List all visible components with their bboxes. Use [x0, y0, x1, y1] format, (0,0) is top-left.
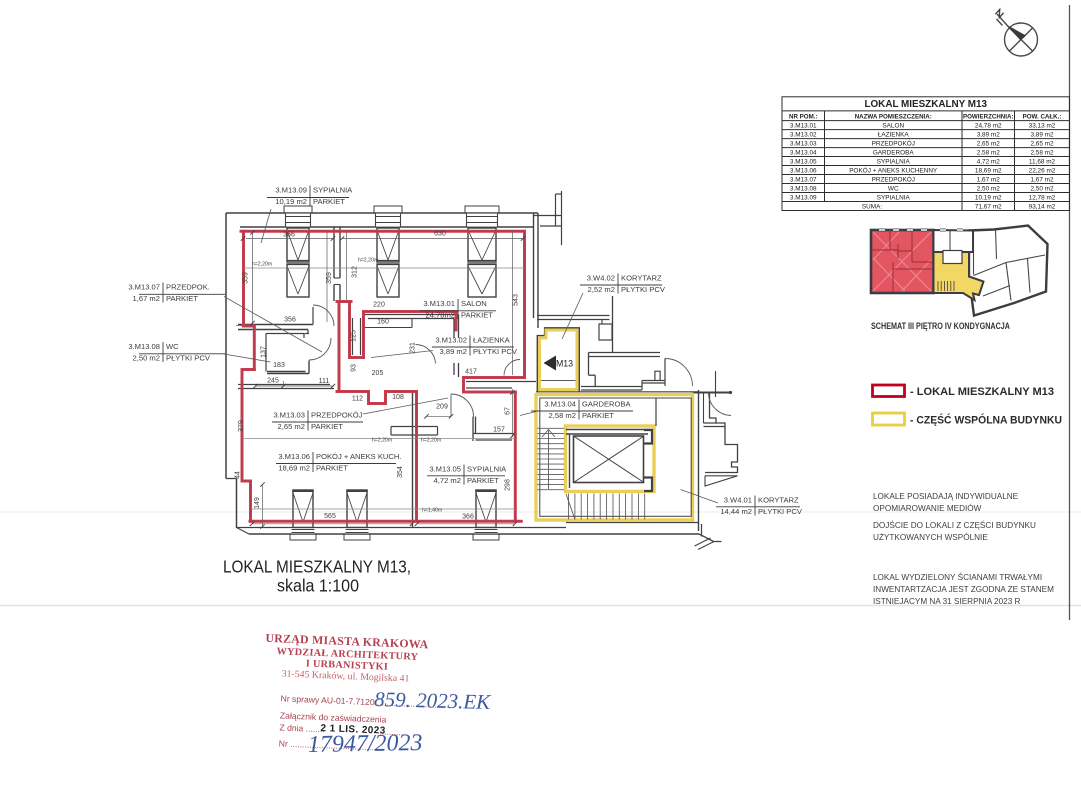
svg-text:630: 630	[434, 231, 446, 238]
svg-text:ŁAZIENKA: ŁAZIENKA	[473, 336, 511, 345]
svg-text:379: 379	[238, 420, 245, 432]
svg-text:KORYTARZ: KORYTARZ	[621, 274, 662, 283]
svg-text:h=2,20m: h=2,20m	[372, 438, 392, 444]
svg-text:67: 67	[505, 407, 512, 415]
svg-text:PŁYTKI PCV: PŁYTKI PCV	[166, 354, 211, 363]
svg-text:2,58 m2: 2,58 m2	[549, 411, 576, 420]
svg-text:359: 359	[243, 272, 250, 284]
svg-text:PŁYTKI PCV: PŁYTKI PCV	[473, 347, 518, 356]
svg-text:18,69 m2: 18,69 m2	[975, 168, 1002, 175]
svg-text:LOKALE POSIADAJĄ INDYWIDUALNE: LOKALE POSIADAJĄ INDYWIDUALNE	[873, 492, 1019, 501]
svg-text:1,67 m2: 1,67 m2	[1030, 177, 1054, 184]
svg-text:ISTNIEJACYM NA 31 SIERPNIA 202: ISTNIEJACYM NA 31 SIERPNIA 2023 R	[873, 597, 1021, 606]
svg-text:h=2,20m: h=2,20m	[252, 262, 272, 268]
svg-text:3.M13.03: 3.M13.03	[790, 141, 817, 148]
svg-text:h=2,20m: h=2,20m	[421, 438, 441, 444]
svg-text:NR POM.:: NR POM.:	[789, 113, 818, 120]
svg-text:PARKIET: PARKIET	[582, 411, 614, 420]
svg-text:3.M13.04: 3.M13.04	[790, 150, 817, 157]
svg-text:2,50 m2: 2,50 m2	[977, 186, 1001, 193]
svg-text:111: 111	[319, 378, 330, 385]
svg-text:93: 93	[351, 364, 358, 372]
svg-text:INWENTARTZACJA JEST ZGODNA ZE: INWENTARTZACJA JEST ZGODNA ZE STANEM	[873, 585, 1054, 594]
svg-text:PRZEDPOKÓJ: PRZEDPOKÓJ	[872, 175, 915, 184]
svg-text:149: 149	[254, 497, 261, 509]
svg-text:2,50 m2: 2,50 m2	[1030, 186, 1054, 193]
svg-text:2,65 m2: 2,65 m2	[278, 422, 305, 431]
svg-text:3.M13.01: 3.M13.01	[790, 123, 817, 130]
svg-text:3.M13.09: 3.M13.09	[275, 186, 307, 195]
svg-text:33,13 m2: 33,13 m2	[1029, 123, 1056, 130]
svg-text:SCHEMAT III PIĘTRO IV KONDYGNA: SCHEMAT III PIĘTRO IV KONDYGNACJA	[871, 321, 1011, 331]
svg-text:312: 312	[352, 266, 359, 278]
svg-text:POWIERZCHNIA:: POWIERZCHNIA:	[963, 113, 1014, 120]
svg-text:44: 44	[235, 471, 242, 479]
svg-text:SALON: SALON	[461, 299, 487, 308]
svg-text:18,69 m2: 18,69 m2	[278, 464, 310, 473]
svg-text:SYPIALNIA: SYPIALNIA	[877, 159, 911, 166]
svg-text:859. 2023.EK: 859. 2023.EK	[374, 687, 492, 714]
svg-text:SUMA:: SUMA:	[862, 204, 882, 211]
svg-text:PARKIET: PARKIET	[311, 422, 343, 431]
svg-text:PARKIET: PARKIET	[461, 311, 493, 320]
svg-text:POW. CAŁK.:: POW. CAŁK.:	[1023, 113, 1062, 120]
svg-text:157: 157	[493, 427, 505, 434]
svg-text:3.M13.08: 3.M13.08	[128, 342, 160, 351]
svg-text:LOKAL MIESZKALNY M13: LOKAL MIESZKALNY M13	[864, 99, 987, 110]
svg-text:14,44 m2: 14,44 m2	[720, 507, 752, 516]
svg-text:PARKIET: PARKIET	[313, 197, 345, 206]
svg-text:22,26 m2: 22,26 m2	[1029, 168, 1056, 175]
svg-text:112: 112	[352, 396, 363, 403]
svg-text:125: 125	[351, 330, 358, 342]
svg-text:245: 245	[267, 378, 279, 385]
svg-text:PRZEDPOKÓJ: PRZEDPOKÓJ	[872, 139, 915, 148]
svg-text:160: 160	[377, 319, 389, 326]
svg-text:WC: WC	[888, 186, 899, 193]
svg-text:417: 417	[465, 369, 477, 376]
svg-text:356: 356	[284, 317, 296, 324]
svg-text:205: 205	[372, 370, 384, 377]
svg-text:356: 356	[283, 232, 295, 239]
svg-text:PRZEDPOK.: PRZEDPOK.	[166, 283, 210, 292]
svg-text:SYPIALNIA: SYPIALNIA	[467, 465, 507, 474]
svg-text:3.M13.07: 3.M13.07	[790, 177, 817, 184]
svg-text:3.W4.01: 3.W4.01	[724, 496, 752, 505]
svg-text:3.M13.06: 3.M13.06	[278, 452, 310, 461]
svg-text:2,58 m2: 2,58 m2	[1030, 150, 1054, 157]
svg-text:3.M13.05: 3.M13.05	[790, 159, 817, 166]
svg-text:11,68 m2: 11,68 m2	[1029, 159, 1056, 166]
svg-text:M13: M13	[556, 359, 573, 369]
svg-text:565: 565	[324, 513, 336, 520]
svg-text:10,19 m2: 10,19 m2	[975, 195, 1002, 202]
svg-text:LOKAL WYDZIELONY ŚCIANAMI TRWA: LOKAL WYDZIELONY ŚCIANAMI TRWAŁYMI	[873, 571, 1042, 582]
svg-text:PARKIET: PARKIET	[467, 476, 499, 485]
svg-text:GARDEROBA: GARDEROBA	[873, 150, 915, 157]
svg-text:ŁAZIENKA: ŁAZIENKA	[878, 132, 910, 139]
svg-text:WC: WC	[166, 342, 179, 351]
svg-text:PŁYTKI PCV: PŁYTKI PCV	[621, 285, 666, 294]
svg-text:183: 183	[273, 362, 285, 369]
svg-text:3.W4.02: 3.W4.02	[587, 274, 615, 283]
svg-text:GARDEROBA: GARDEROBA	[582, 400, 631, 409]
svg-text:3.M13.02: 3.M13.02	[435, 336, 467, 345]
svg-text:SYPIALNIA: SYPIALNIA	[877, 195, 911, 202]
svg-text:17947/2023: 17947/2023	[308, 730, 423, 758]
svg-text:3.M13.06: 3.M13.06	[790, 168, 817, 175]
svg-text:PARKIET: PARKIET	[166, 294, 198, 303]
svg-text:3,89 m2: 3,89 m2	[1030, 132, 1054, 139]
svg-text:skala 1:100: skala 1:100	[277, 576, 359, 596]
svg-text:SALON: SALON	[882, 123, 904, 130]
svg-text:4,72 m2: 4,72 m2	[977, 159, 1001, 166]
svg-text:LOKAL MIESZKALNY M13,: LOKAL MIESZKALNY M13,	[223, 557, 411, 577]
svg-text:24,78m2: 24,78m2	[425, 311, 455, 320]
svg-text:2,50 m2: 2,50 m2	[133, 354, 160, 363]
svg-text:108: 108	[392, 394, 404, 401]
svg-text:UŻYTKOWANYCH WSPÓLNIE: UŻYTKOWANYCH WSPÓLNIE	[873, 532, 988, 542]
svg-text:3.M13.08: 3.M13.08	[790, 186, 817, 193]
svg-text:10,19 m2: 10,19 m2	[275, 197, 307, 206]
svg-text:3,89 m2: 3,89 m2	[440, 347, 467, 356]
svg-text:93,14 m2: 93,14 m2	[1029, 204, 1056, 211]
svg-text:231: 231	[410, 342, 417, 354]
svg-text:- CZĘŚĆ WSPÓLNA BUDYNKU: - CZĘŚĆ WSPÓLNA BUDYNKU	[910, 414, 1062, 427]
svg-text:2,65 m2: 2,65 m2	[1030, 141, 1054, 148]
svg-text:h=1,40m: h=1,40m	[422, 508, 442, 514]
svg-text:DOJŚCIE DO LOKALI Z CZĘŚCI BUD: DOJŚCIE DO LOKALI Z CZĘŚCI BUDYNKU	[873, 519, 1036, 530]
svg-text:2,58 m2: 2,58 m2	[977, 150, 1001, 157]
svg-text:3.M13.04: 3.M13.04	[544, 400, 576, 409]
svg-text:3,89 m2: 3,89 m2	[977, 132, 1001, 139]
svg-text:- LOKAL MIESZKALNY M13: - LOKAL MIESZKALNY M13	[910, 386, 1054, 398]
svg-text:209: 209	[436, 404, 448, 411]
svg-text:298: 298	[505, 479, 512, 491]
svg-text:4,72 m2: 4,72 m2	[434, 476, 461, 485]
svg-text:12,78 m2: 12,78 m2	[1029, 195, 1056, 202]
svg-text:POKÓJ + ANEKS KUCHENNY: POKÓJ + ANEKS KUCHENNY	[849, 166, 938, 175]
svg-text:1,67 m2: 1,67 m2	[133, 294, 160, 303]
svg-text:3.M13.01: 3.M13.01	[423, 299, 455, 308]
svg-text:137: 137	[261, 346, 268, 358]
svg-text:3.M13.03: 3.M13.03	[273, 411, 305, 420]
svg-text:h=2,20m: h=2,20m	[358, 258, 378, 264]
svg-text:71,67 m2: 71,67 m2	[975, 204, 1002, 211]
svg-text:PŁYTKI PCV: PŁYTKI PCV	[758, 507, 803, 516]
svg-text:KORYTARZ: KORYTARZ	[758, 496, 799, 505]
svg-text:NAZWA POMIESZCZENIA:: NAZWA POMIESZCZENIA:	[855, 113, 932, 120]
svg-text:543: 543	[513, 294, 520, 306]
svg-text:3.M13.09: 3.M13.09	[790, 195, 817, 202]
svg-text:3.M13.07: 3.M13.07	[128, 283, 160, 292]
svg-text:1,67 m2: 1,67 m2	[977, 177, 1001, 184]
svg-text:220: 220	[373, 302, 385, 309]
svg-text:366: 366	[462, 514, 474, 521]
svg-text:OPOMIAROWANIE MEDIÓW: OPOMIAROWANIE MEDIÓW	[873, 503, 982, 513]
svg-text:354: 354	[397, 466, 404, 478]
svg-text:PRZEDPOKÓJ: PRZEDPOKÓJ	[311, 411, 363, 420]
svg-text:2,65 m2: 2,65 m2	[977, 141, 1001, 148]
svg-text:PARKIET: PARKIET	[316, 464, 348, 473]
svg-text:24,78 m2: 24,78 m2	[975, 123, 1002, 130]
svg-text:2,52 m2: 2,52 m2	[588, 285, 615, 294]
svg-text:3.M13.02: 3.M13.02	[790, 132, 817, 139]
svg-text:POKÓJ + ANEKS KUCH.: POKÓJ + ANEKS KUCH.	[316, 452, 401, 461]
svg-text:3.M13.05: 3.M13.05	[429, 465, 461, 474]
svg-text:SYPIALNIA: SYPIALNIA	[313, 186, 353, 195]
